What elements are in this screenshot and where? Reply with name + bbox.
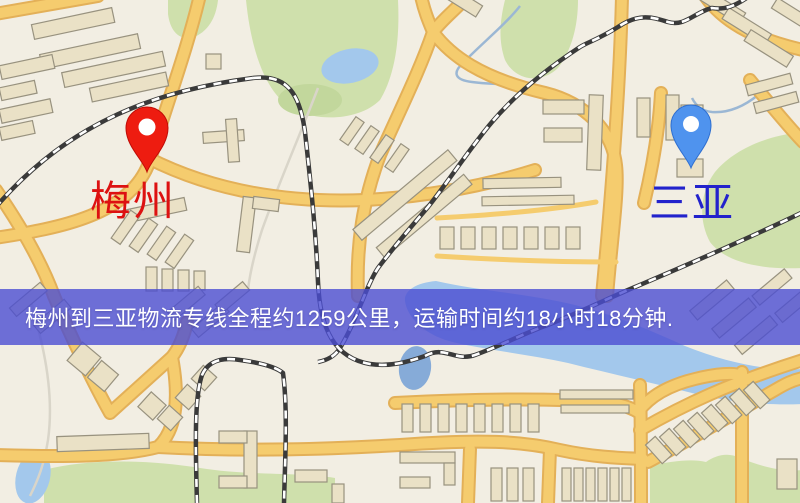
building [0, 80, 37, 100]
building [587, 95, 604, 170]
building [482, 195, 574, 206]
building [219, 476, 247, 488]
building [524, 227, 538, 249]
building [586, 468, 595, 501]
building [332, 484, 344, 503]
park-area [44, 462, 335, 503]
building [252, 196, 279, 211]
destination-label: 三亚 [649, 183, 735, 224]
building [544, 128, 582, 142]
route-info-banner: 梅州到三亚物流专线全程约1259公里，运输时间约18小时18分钟. [0, 289, 800, 345]
map-graphic [0, 0, 800, 503]
building [420, 404, 431, 432]
building [444, 463, 455, 485]
buildings [0, 0, 800, 503]
map-canvas: 梅州 三亚 梅州到三亚物流专线全程约1259公里，运输时间约18小时18分钟. [0, 0, 800, 503]
origin-label: 梅州 [90, 181, 176, 222]
park-area [500, 0, 578, 78]
building [482, 227, 496, 249]
building [561, 405, 629, 413]
building [528, 404, 539, 432]
building [461, 227, 475, 249]
building [226, 119, 240, 163]
building [566, 227, 580, 249]
building [0, 55, 55, 80]
building [637, 98, 650, 137]
building [503, 227, 517, 249]
building [562, 468, 571, 501]
building [400, 452, 455, 463]
building [162, 269, 173, 291]
building [483, 177, 561, 188]
building [492, 404, 503, 432]
building [0, 121, 35, 141]
arcade-line [437, 256, 616, 262]
building [57, 433, 149, 451]
building [510, 404, 521, 432]
origin-pin-hole [139, 119, 156, 136]
building [543, 100, 584, 114]
building [545, 227, 559, 249]
river-deep [396, 344, 434, 392]
building [440, 227, 454, 249]
building [178, 270, 189, 291]
building [598, 468, 607, 501]
building [206, 54, 221, 69]
building [574, 468, 583, 501]
building [0, 99, 53, 124]
building [523, 468, 534, 501]
building [456, 404, 467, 432]
building [146, 267, 157, 291]
building [400, 477, 430, 488]
building [295, 470, 327, 482]
building [402, 404, 413, 432]
building [610, 468, 619, 501]
building [622, 468, 631, 501]
building [474, 404, 485, 432]
building [219, 431, 247, 443]
route-info-text: 梅州到三亚物流专线全程约1259公里，运输时间约18小时18分钟. [25, 301, 674, 333]
building [491, 468, 502, 501]
building [560, 390, 633, 399]
destination-pin-hole [683, 116, 699, 132]
building [507, 468, 518, 501]
building [771, 0, 800, 26]
building [438, 404, 449, 432]
building [777, 459, 797, 489]
